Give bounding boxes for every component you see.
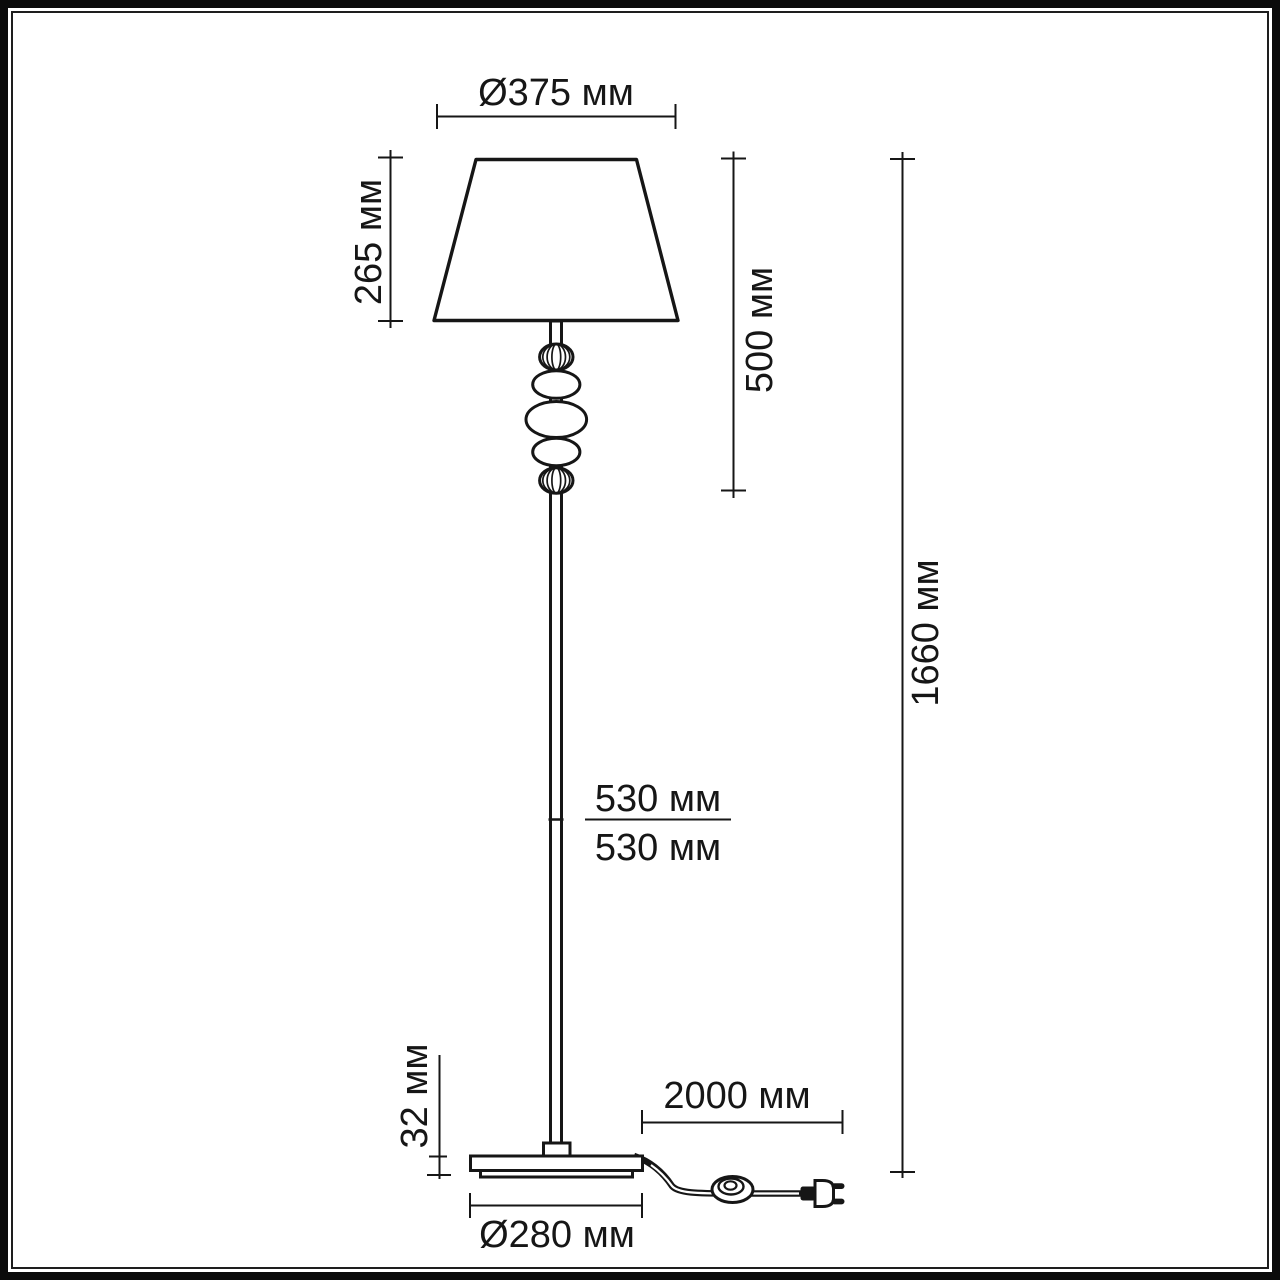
base-top-plate [471, 1156, 643, 1171]
power-plug [801, 1181, 845, 1207]
bead-ribbed-bottom [540, 468, 573, 494]
diagram-page: Ø375 мм 265 мм 500 мм 1660 мм 530 мм 530… [0, 0, 1280, 1280]
dim-pole-segments: 530 мм 530 мм [585, 778, 731, 869]
bead-oval-large [526, 402, 587, 438]
plug-prong-bottom [832, 1199, 845, 1205]
plug-body [815, 1181, 834, 1207]
dim-label-shade-diameter: Ø375 мм [478, 72, 634, 114]
plug-prong-top [832, 1183, 845, 1189]
dim-label-total-height: 1660 мм [905, 559, 947, 706]
dim-label-upper-section: 500 мм [739, 267, 781, 393]
dim-label-shade-height: 265 мм [348, 179, 390, 305]
bead-oval-small-lower [533, 438, 580, 465]
dim-label-pole-lower: 530 мм [595, 827, 721, 869]
lamp-shade [434, 160, 678, 321]
dim-label-base-diameter: Ø280 мм [479, 1214, 635, 1256]
foot-switch [712, 1177, 753, 1203]
dim-label-cable-length: 2000 мм [663, 1075, 810, 1117]
bead-oval-small-upper [533, 371, 580, 399]
dim-label-pole-upper: 530 мм [595, 778, 721, 820]
bead-ribbed-top [540, 344, 573, 370]
pole-base-collar [544, 1143, 571, 1157]
floor-lamp-dimension-drawing: Ø375 мм 265 мм 500 мм 1660 мм 530 мм 530… [0, 0, 1280, 1280]
dim-label-base-thickness: 32 мм [394, 1043, 436, 1148]
floor-lamp [434, 160, 845, 1207]
plug-cord-boot [801, 1187, 816, 1201]
base-bottom-plate [481, 1171, 633, 1178]
